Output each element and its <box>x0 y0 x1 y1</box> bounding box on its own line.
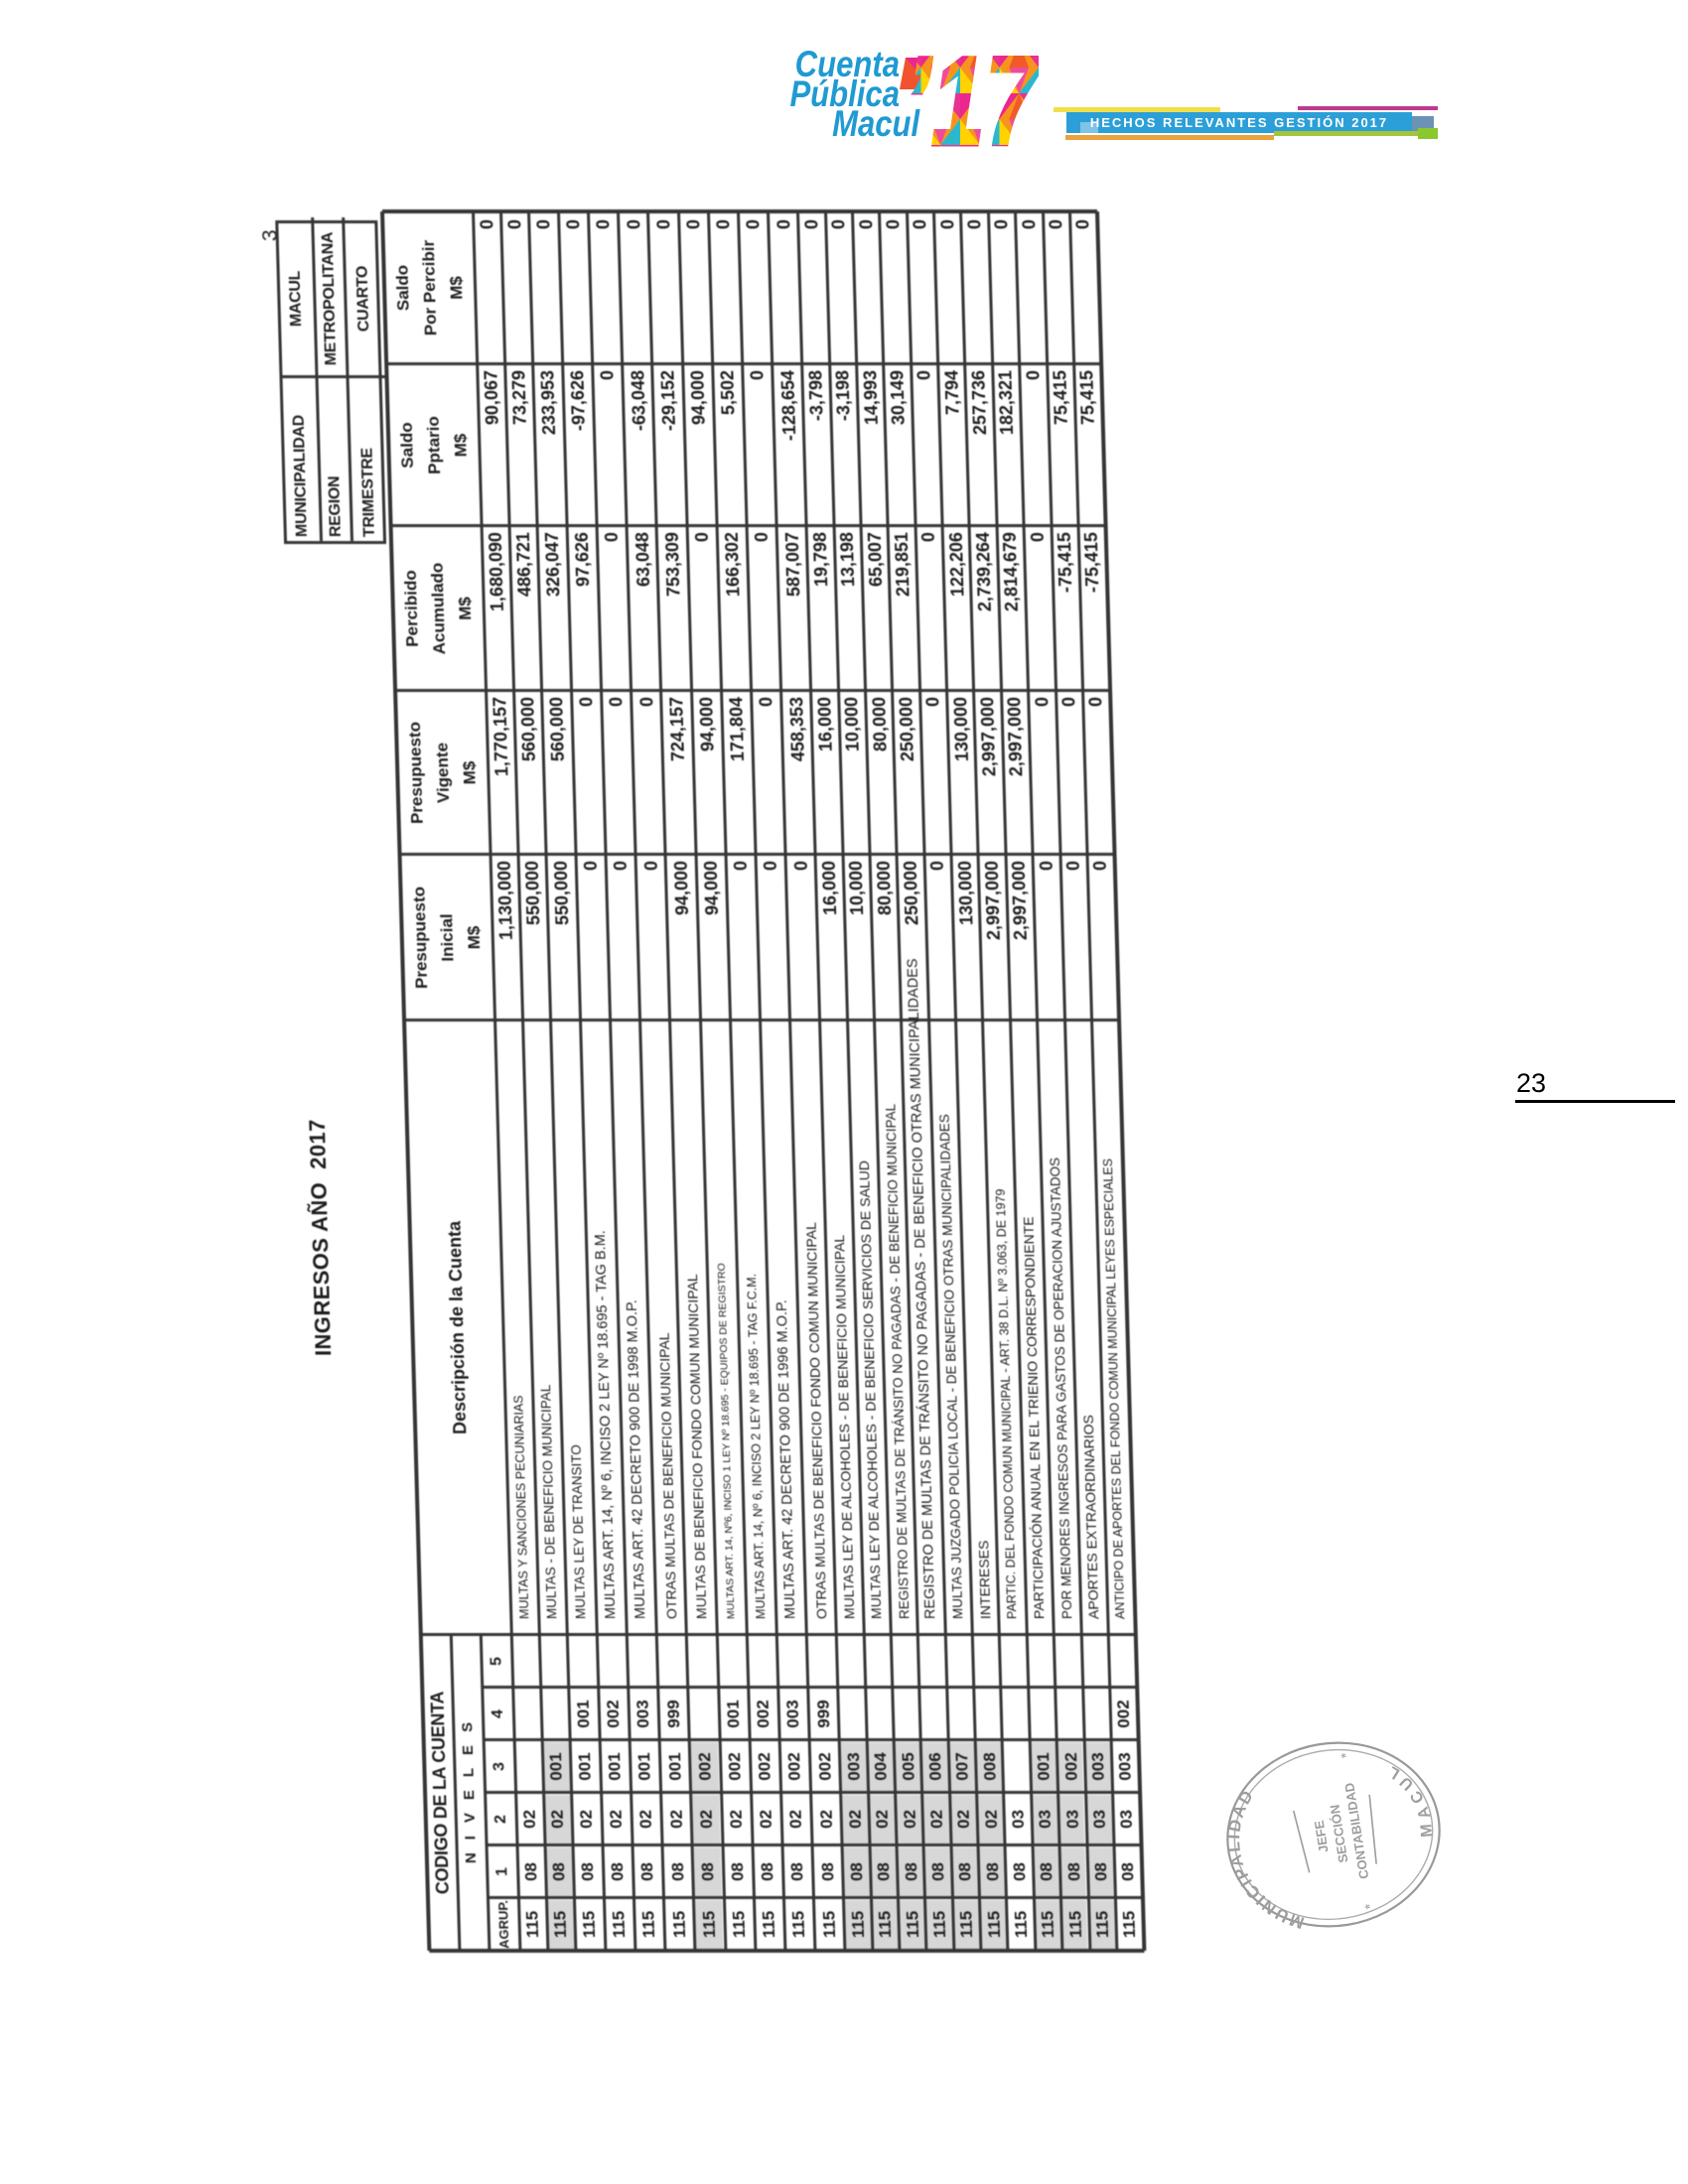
svg-text:*: * <box>1337 1751 1355 1760</box>
svg-text:*: * <box>1361 1902 1379 1911</box>
svg-text:MUNICIPALIDAD: MUNICIPALIDAD <box>1221 1779 1309 1934</box>
svg-text:JEFE: JEFE <box>1312 1819 1332 1853</box>
svg-text:CONTABILIDAD: CONTABILIDAD <box>1341 1782 1371 1880</box>
